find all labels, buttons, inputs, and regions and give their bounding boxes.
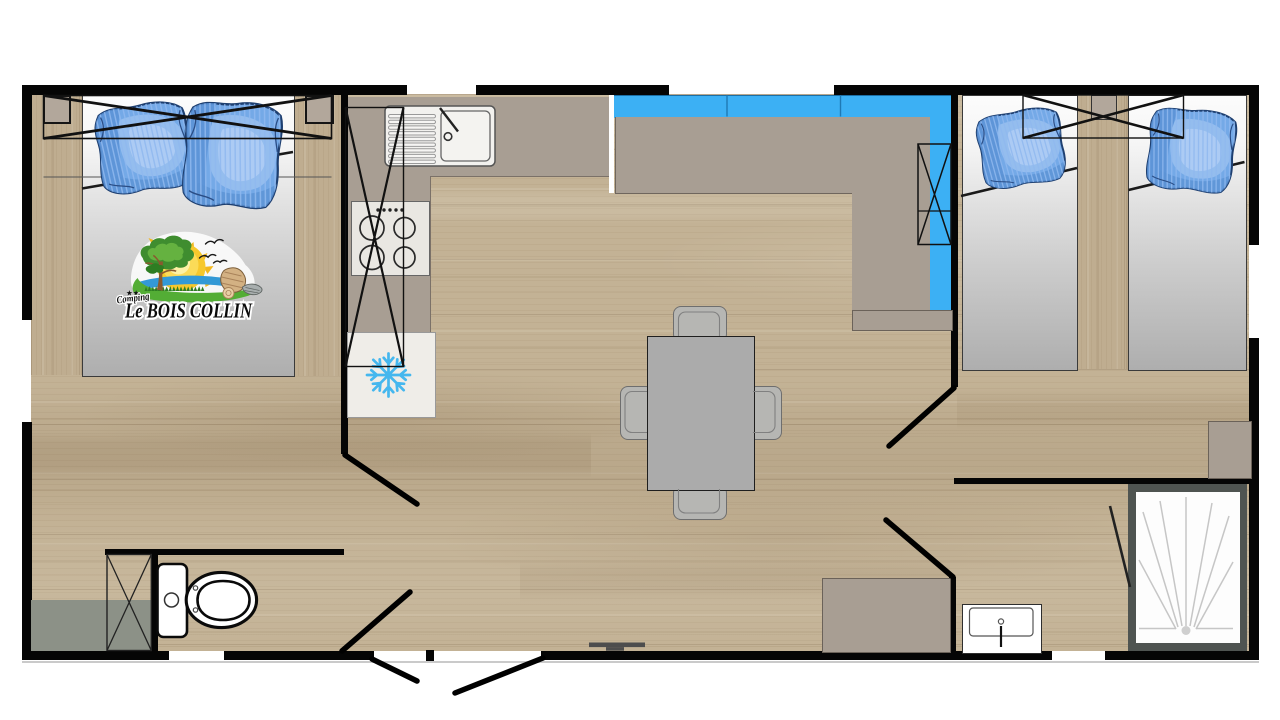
svg-text:Le BOIS COLLIN: Le BOIS COLLIN bbox=[124, 299, 252, 323]
